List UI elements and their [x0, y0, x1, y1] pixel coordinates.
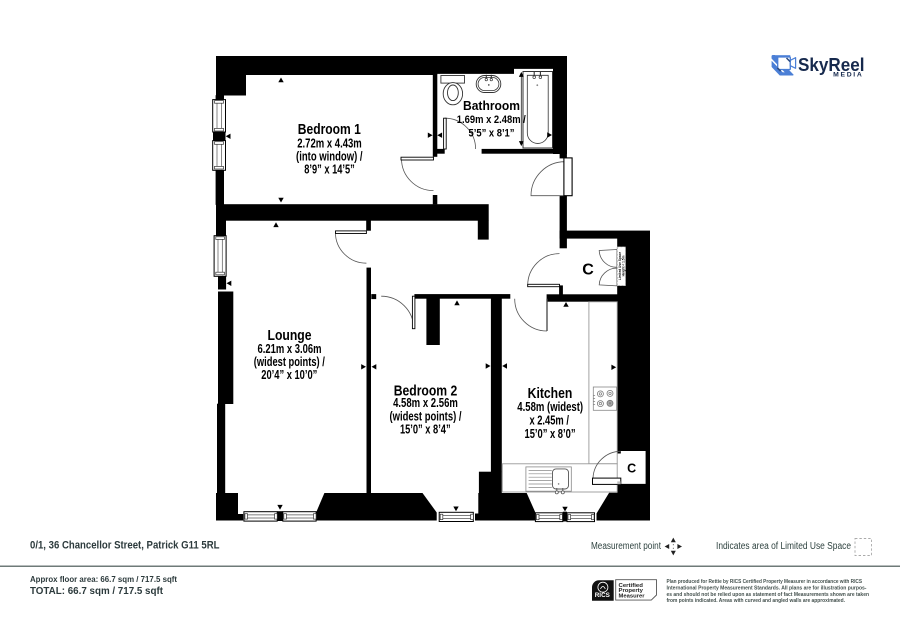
svg-text:0/1, 36 Chancellor Street, Pat: 0/1, 36 Chancellor Street, Patrick G11 5…	[30, 540, 220, 552]
svg-text:C: C	[627, 462, 636, 476]
svg-text:4.58m (widest): 4.58m (widest)	[517, 400, 583, 414]
svg-text:Bedroom 1: Bedroom 1	[298, 121, 361, 138]
svg-text:5’5” x 8’1”: 5’5” x 8’1”	[469, 127, 515, 139]
svg-text:(widest points) /: (widest points) /	[254, 355, 325, 369]
svg-text:20’4” x 10’0”: 20’4” x 10’0”	[261, 368, 317, 382]
svg-text:RICS: RICS	[595, 593, 610, 599]
svg-text:TOTAL: 66.7 sqm / 717.5 sqft: TOTAL: 66.7 sqm / 717.5 sqft	[30, 586, 164, 597]
svg-text:es and should not be relied up: es and should not be relied upon as stat…	[667, 592, 870, 598]
svg-text:Bathroom: Bathroom	[463, 98, 520, 113]
svg-text:International Property Measur: International Property Measurement Stand…	[667, 585, 867, 591]
svg-text:8’9” x 14’5”: 8’9” x 14’5”	[304, 163, 355, 177]
svg-text:15’0” x 8’4”: 15’0” x 8’4”	[400, 422, 451, 436]
svg-text:6.21m x 3.06m: 6.21m x 3.06m	[258, 342, 322, 356]
svg-text:Approx floor area: 66.7 sqm /: Approx floor area: 66.7 sqm / 717.5 sqft	[30, 574, 177, 584]
svg-text:15’0” x 8’0”: 15’0” x 8’0”	[525, 427, 576, 441]
svg-text:Plan produced for Rettie by RI: Plan produced for Rettie by RICS Certifi…	[667, 579, 863, 585]
svg-text:Height < 1.5m: Height < 1.5m	[621, 255, 625, 276]
svg-text:Indicates area of Limited Use: Indicates area of Limited Use Space	[716, 541, 851, 552]
svg-text:x 2.45m /: x 2.45m /	[529, 414, 569, 428]
svg-text:4.58m x 2.56m: 4.58m x 2.56m	[393, 396, 458, 410]
svg-text:Measurer: Measurer	[619, 593, 646, 599]
svg-text:1.69m x 2.48m /: 1.69m x 2.48m /	[457, 114, 526, 126]
svg-text:Measurement point: Measurement point	[591, 541, 661, 552]
svg-text:2.72m x 4.43m: 2.72m x 4.43m	[297, 137, 362, 151]
svg-text:(into window) /: (into window) /	[296, 150, 363, 164]
svg-text:(widest points) /: (widest points) /	[390, 409, 462, 423]
svg-text:from points indicated. Areas w: from points indicated. Areas with curved…	[667, 598, 846, 604]
svg-text:C: C	[582, 262, 594, 279]
svg-text:MEDIA: MEDIA	[833, 72, 863, 79]
